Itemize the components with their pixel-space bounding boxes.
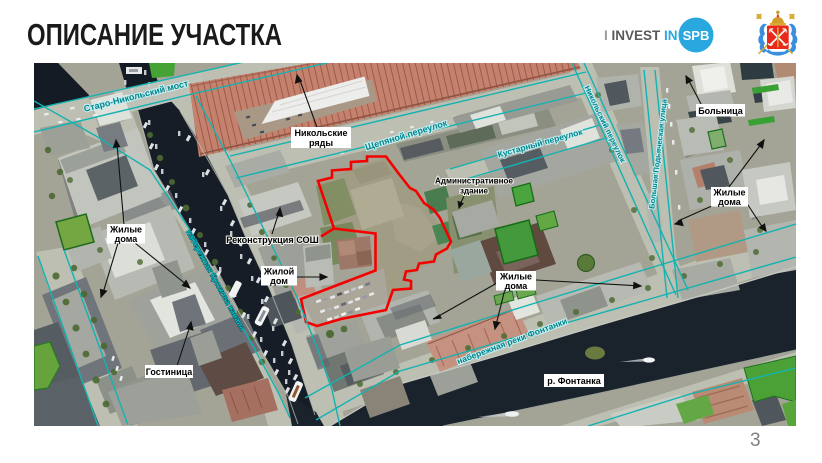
svg-text:SPB: SPB	[683, 28, 710, 43]
svg-text:ряды: ряды	[309, 138, 333, 148]
svg-text:Жилые: Жилые	[109, 225, 142, 235]
svg-text:Больница: Больница	[698, 106, 744, 116]
svg-text:дом: дом	[270, 276, 288, 286]
svg-text:Реконструкция СОШ: Реконструкция СОШ	[226, 235, 319, 245]
svg-text:Жилой: Жилой	[263, 267, 294, 277]
svg-text:здание: здание	[460, 187, 489, 196]
svg-text:Жилые: Жилые	[499, 272, 532, 282]
svg-text:р. Фонтанка: р. Фонтанка	[547, 376, 601, 386]
svg-text:дома: дома	[718, 197, 742, 207]
svg-text:I INVEST IN: I INVEST IN	[604, 28, 678, 43]
svg-text:Никольские: Никольские	[295, 128, 348, 138]
svg-text:дома: дома	[505, 281, 529, 291]
svg-text:дома: дома	[115, 234, 139, 244]
svg-text:Жилые: Жилые	[712, 188, 745, 198]
svg-text:Административное: Административное	[435, 177, 513, 186]
svg-text:Гостиница: Гостиница	[146, 367, 194, 377]
